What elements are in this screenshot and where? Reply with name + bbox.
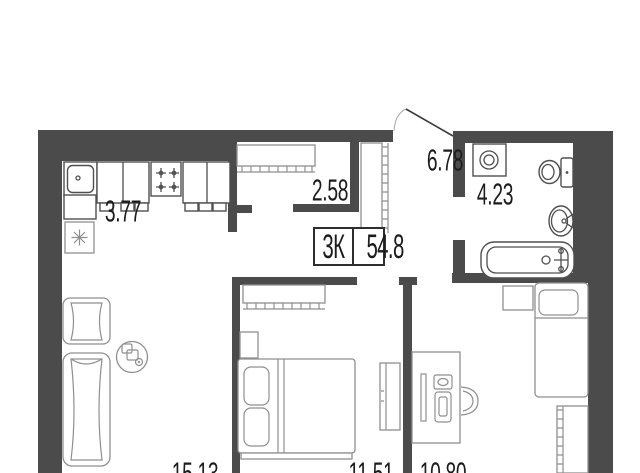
washing-machine <box>473 144 506 176</box>
wall-left-outer <box>38 130 62 473</box>
badge-rooms-count: 3К <box>315 229 352 264</box>
wall-bathroom-shaft <box>573 143 588 283</box>
entrance-door <box>394 109 453 136</box>
bedroom-nightstand <box>240 332 258 358</box>
kitchen-sink-basin <box>68 166 94 193</box>
hallway-wardrobe <box>361 143 382 233</box>
single-bed <box>535 283 588 397</box>
area-label-bathroom: 4.23 <box>477 179 513 210</box>
wall-top-kitchen <box>38 130 237 161</box>
bedroom-wardrobe-rail-hatch <box>243 303 325 309</box>
stove <box>151 162 181 196</box>
area-label-closet: 2.58 <box>312 175 348 206</box>
floor-plan: 3.77 2.58 6.78 4.23 15.13 11.51 10.80 3К… <box>0 0 640 473</box>
area-label-study: 10.80 <box>420 458 467 473</box>
double-bed <box>238 359 355 453</box>
study-wardrobe <box>557 406 588 473</box>
wall-top-right <box>453 131 613 143</box>
badge-total-area: 54.8 <box>352 229 416 264</box>
wall-closet-stub <box>237 205 252 213</box>
sofa <box>63 353 110 466</box>
area-label-bedroom: 11.51 <box>348 458 393 473</box>
study-furniture <box>412 283 588 473</box>
under-sink-cabinet <box>64 195 96 219</box>
table-plant-center <box>138 361 140 363</box>
armchair <box>63 298 110 344</box>
closet-wardrobe <box>237 145 315 166</box>
wall-closet-right <box>350 142 359 208</box>
kitchen-fixtures <box>64 162 230 253</box>
bedroom-wardrobe <box>243 285 325 303</box>
toilet-flush-button <box>566 171 569 174</box>
wall-top-middle <box>237 130 393 142</box>
wall-bedroom-study <box>403 285 412 473</box>
area-label-hallway: 6.78 <box>427 145 463 176</box>
hallway-wardrobe-rail-hatch <box>382 143 388 233</box>
desk <box>412 352 460 443</box>
area-label-living-room: 15.13 <box>172 458 219 473</box>
closet-wardrobe-rail-hatch <box>237 166 315 172</box>
bedroom-furniture <box>238 285 400 459</box>
study-nightstand <box>503 286 533 310</box>
wall-bedroom-top <box>232 277 357 285</box>
bed-footboard <box>241 453 352 459</box>
wall-study-cap <box>399 277 417 285</box>
wall-right-outer <box>588 143 613 473</box>
desk-chair <box>461 387 478 415</box>
living-room-furniture <box>63 298 148 466</box>
area-label-kitchen: 3.77 <box>105 196 141 227</box>
door-swing-icon <box>394 109 406 131</box>
door-leaf <box>406 109 453 136</box>
plan-type-badge: 3К 54.8 <box>313 227 385 266</box>
bedroom-dresser <box>380 363 400 430</box>
